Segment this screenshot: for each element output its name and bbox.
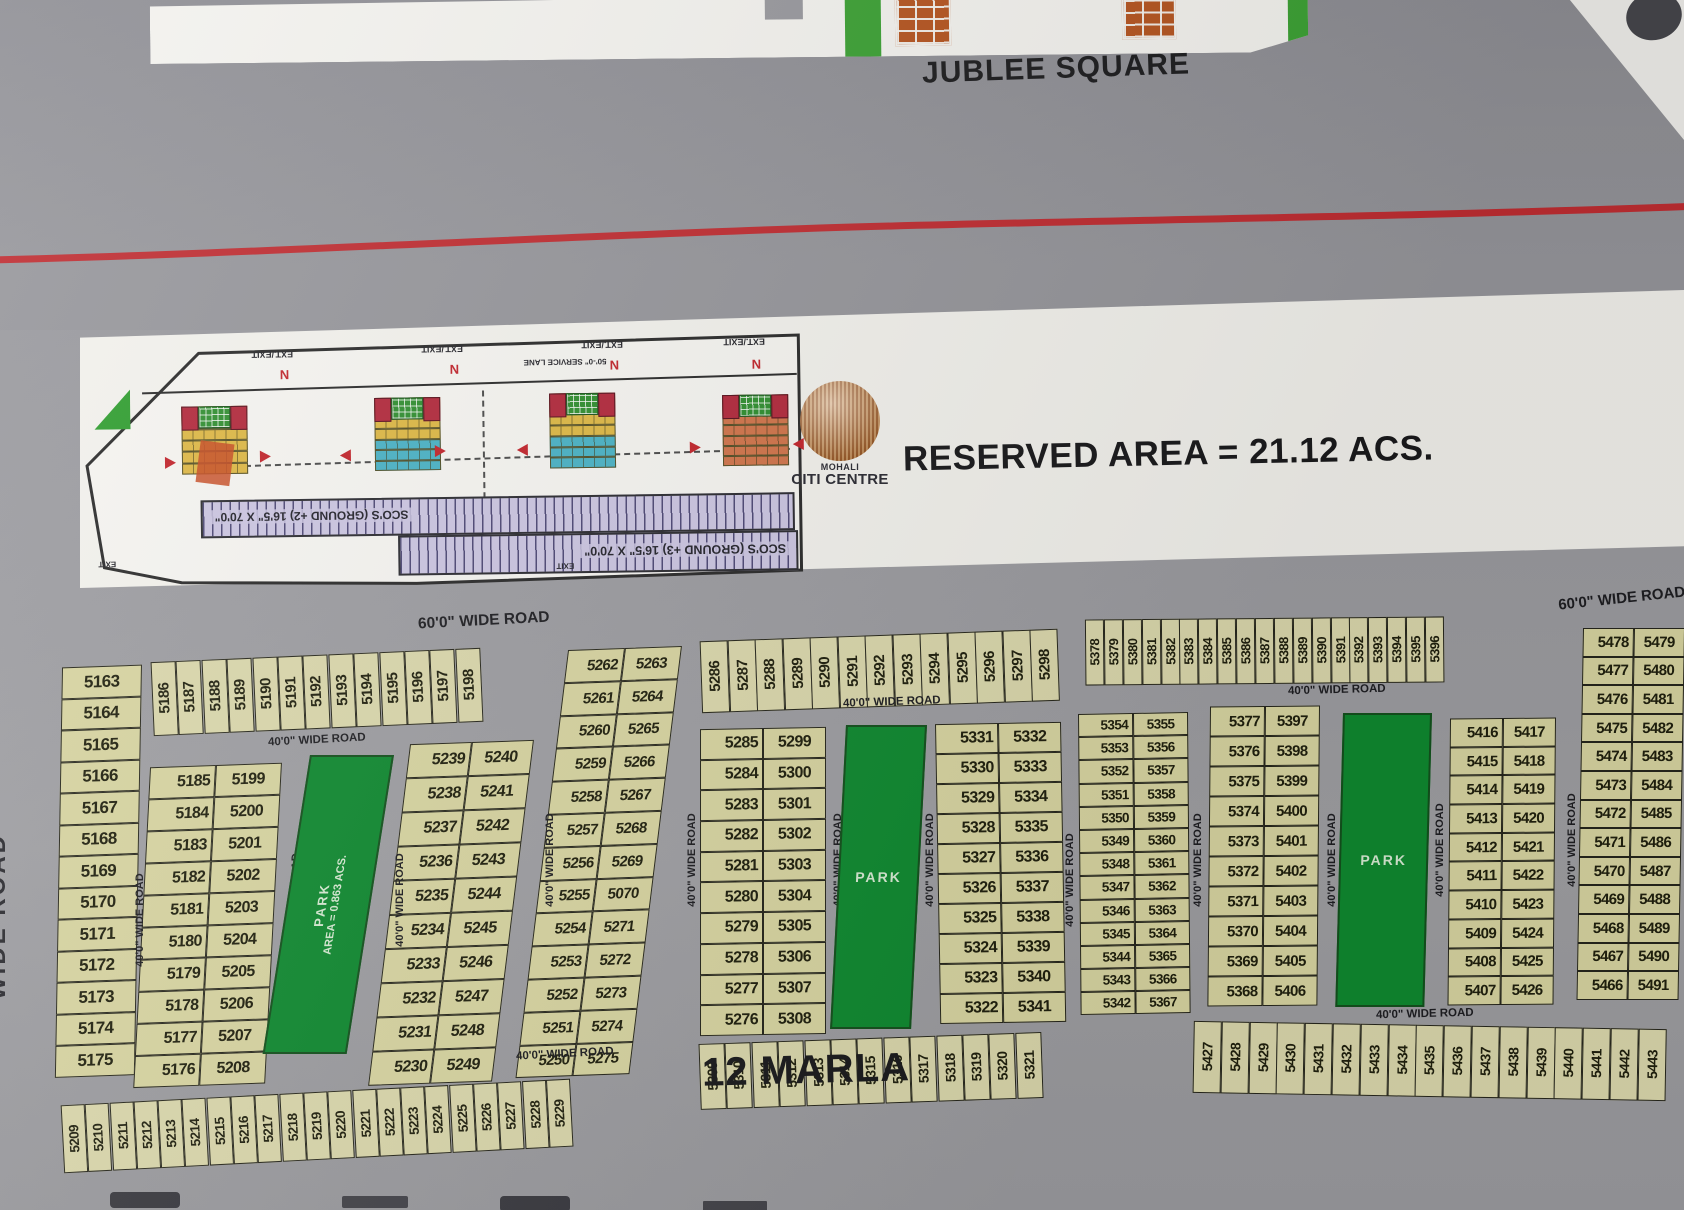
plot-pair-row: 54715486 bbox=[1579, 828, 1681, 857]
plot-cell: 5473 bbox=[1580, 771, 1631, 800]
plot-cell: 5258 bbox=[548, 780, 609, 815]
plot-cell: 5193 bbox=[328, 653, 357, 728]
plot-cell: 5188 bbox=[201, 659, 230, 734]
plot-cell: 5430 bbox=[1276, 1022, 1305, 1094]
green-grid-block bbox=[566, 393, 598, 415]
plot-pair-row: 52325247 bbox=[376, 979, 504, 1017]
plot-cell: 5483 bbox=[1632, 742, 1683, 771]
plot-cell: 5238 bbox=[402, 776, 468, 812]
plot-pair-row: 52515274 bbox=[519, 1009, 637, 1046]
mohali-citi-centre-logo bbox=[800, 381, 880, 461]
plot-cell: 5428 bbox=[1221, 1021, 1250, 1093]
plot-cell: 5285 bbox=[700, 728, 763, 760]
plot-cell: 5176 bbox=[133, 1054, 201, 1088]
road-label: 40'0" WIDE ROAD bbox=[394, 853, 406, 946]
plot-cell: 5467 bbox=[1577, 943, 1628, 972]
plot-pair-row: 52785306 bbox=[700, 942, 826, 975]
plot-cell: 5218 bbox=[279, 1093, 307, 1162]
plot-cell: 5477 bbox=[1582, 657, 1633, 686]
plot-pair-row: 52525273 bbox=[524, 976, 642, 1013]
plot-pair-row: 54725485 bbox=[1580, 800, 1682, 829]
plot-cell: 5207 bbox=[201, 1019, 269, 1053]
plot-cell: 5407 bbox=[1447, 976, 1500, 1005]
plot-pair-row: 52355244 bbox=[389, 877, 517, 915]
plot-pair-row: 52795305 bbox=[700, 911, 826, 944]
plot-cell: 5246 bbox=[443, 945, 509, 981]
plot-cell: 5197 bbox=[429, 649, 458, 724]
plot-pair-row: 52365243 bbox=[393, 842, 521, 880]
plot-cell: 5409 bbox=[1448, 919, 1501, 948]
plot-cell: 5443 bbox=[1637, 1029, 1666, 1101]
plot-pair-row: 52375242 bbox=[397, 808, 525, 846]
red-arrow bbox=[340, 449, 351, 461]
plot-cell: 5425 bbox=[1501, 947, 1554, 976]
plot-cell: 5395 bbox=[1406, 617, 1425, 683]
building-cluster bbox=[181, 406, 248, 497]
plot-cell: 5416 bbox=[1450, 718, 1503, 747]
plot-pair-row: 54685489 bbox=[1578, 914, 1680, 943]
plot-cell: 5321 bbox=[1015, 1032, 1044, 1099]
plot-cell: 5424 bbox=[1501, 918, 1554, 947]
road-label: 40'0" WIDE ROAD bbox=[134, 873, 146, 966]
plot-pair-row: 53305333 bbox=[936, 752, 1063, 784]
plot-cell: 5405 bbox=[1263, 946, 1318, 976]
plot-cell: 5377 bbox=[1210, 706, 1265, 736]
plot-cell: 5433 bbox=[1360, 1024, 1389, 1096]
plot-pair-row: 54115422 bbox=[1448, 861, 1554, 891]
plot-cell: 5182 bbox=[143, 861, 211, 895]
plot-pair-row: 54075426 bbox=[1447, 976, 1553, 1006]
plot-cell: 5249 bbox=[430, 1047, 496, 1083]
site-plan-photo: JUBLEE SQUARE EXT./EXIT EXT./EXIT EXT./E… bbox=[0, 0, 1684, 1210]
plot-cell: 5383 bbox=[1179, 619, 1198, 685]
plot-cell: 5401 bbox=[1264, 826, 1319, 856]
plot-pair-row: 53465363 bbox=[1080, 898, 1190, 923]
plot-cell: 5231 bbox=[372, 1015, 438, 1051]
plot-cell: 5330 bbox=[936, 753, 1000, 784]
plot-cell: 5284 bbox=[700, 759, 763, 791]
plot-cell: 5418 bbox=[1502, 746, 1555, 775]
plot-block-row_5378: 5378537953805381538253835384538553865387… bbox=[1085, 616, 1444, 685]
plot-cell: 5265 bbox=[613, 712, 674, 747]
plot-cell: 5171 bbox=[57, 917, 138, 951]
plot-cell: 5264 bbox=[617, 679, 678, 714]
plot-cell: 5166 bbox=[60, 759, 141, 793]
red-block bbox=[230, 406, 247, 430]
plot-cell: 5432 bbox=[1332, 1023, 1361, 1095]
plot-cell: 5475 bbox=[1581, 714, 1632, 743]
plot-cell: 5382 bbox=[1161, 619, 1180, 685]
plot-cell: 5334 bbox=[999, 782, 1063, 813]
plot-cell: 5208 bbox=[199, 1051, 267, 1085]
plot-cell: 5222 bbox=[376, 1088, 404, 1157]
plot-cell: 5393 bbox=[1368, 617, 1387, 683]
plot-pair-row: 53515358 bbox=[1079, 782, 1189, 807]
plot-cell: 5167 bbox=[59, 791, 140, 825]
plot-cell: 5434 bbox=[1387, 1024, 1416, 1096]
plot-block-pairs_5466_5491: 5478547954775480547654815475548254745483… bbox=[1577, 628, 1684, 1000]
plot-block-row_5209: 5209521052115212521352145215521652175218… bbox=[60, 1079, 573, 1174]
plot-pair-row: 53755399 bbox=[1209, 766, 1319, 797]
plot-pair-row: 52845300 bbox=[700, 758, 826, 791]
plot-pair-row: 53315332 bbox=[935, 722, 1062, 754]
plot-cell: 5399 bbox=[1264, 766, 1319, 796]
plot-pair-row: 52815303 bbox=[700, 850, 826, 883]
plot-pair-row: 53265337 bbox=[938, 872, 1065, 904]
plot-cell: 5488 bbox=[1629, 885, 1680, 914]
plot-cell: 5203 bbox=[208, 891, 276, 925]
plot-pair-row: 51835201 bbox=[145, 827, 279, 864]
photo-edge-artifacts bbox=[110, 1192, 180, 1208]
plot-cell: 5328 bbox=[937, 813, 1001, 844]
cluster-row bbox=[550, 457, 616, 469]
plot-cell: 5337 bbox=[1001, 872, 1065, 903]
plot-cell: 5267 bbox=[605, 778, 666, 813]
plot-pair-row: 52805304 bbox=[700, 880, 826, 913]
plot-cell: 5442 bbox=[1610, 1028, 1639, 1100]
plot-cell: 5244 bbox=[451, 877, 517, 913]
plot-cell: 5174 bbox=[55, 1012, 136, 1046]
plot-pair-row: 53235340 bbox=[939, 962, 1066, 994]
plot-cell: 5329 bbox=[936, 783, 1000, 814]
plot-cell: 5361 bbox=[1134, 851, 1189, 875]
plot-cell: 5211 bbox=[109, 1102, 137, 1171]
plot-cell: 5403 bbox=[1263, 886, 1318, 916]
plot-pair-row: 53715403 bbox=[1208, 886, 1318, 917]
road-label: 60'0" WIDE ROAD bbox=[418, 609, 550, 634]
plot-cell: 5228 bbox=[521, 1080, 549, 1149]
plot-cell: 5480 bbox=[1633, 657, 1684, 686]
plot-pair-row: 53295334 bbox=[936, 782, 1063, 814]
plot-cell: 5254 bbox=[532, 912, 593, 947]
plot-pair-row: 53505359 bbox=[1079, 805, 1189, 830]
sco-strip-lower: SCO'S (GROUND +3) 16'5" X 70'0" bbox=[398, 530, 799, 576]
plot-cell: 5187 bbox=[176, 660, 205, 735]
green-grid-block bbox=[739, 394, 771, 416]
plot-cell: 5426 bbox=[1500, 976, 1553, 1005]
plot-cell: 5200 bbox=[213, 795, 281, 829]
plot-cell: 5332 bbox=[998, 722, 1062, 753]
plot-cell: 5224 bbox=[424, 1085, 452, 1154]
plot-cell: 5470 bbox=[1579, 857, 1630, 886]
plot-cell: 5375 bbox=[1209, 766, 1264, 796]
road-label: 40'0" WIDE ROAD bbox=[1376, 1007, 1474, 1022]
plot-cell: 5357 bbox=[1133, 758, 1188, 782]
plot-cell: 5486 bbox=[1630, 828, 1681, 857]
plot-pair-row: 53725402 bbox=[1208, 856, 1318, 887]
exit-label-small: EXIT bbox=[98, 560, 116, 569]
plot-cell: 5276 bbox=[700, 1004, 763, 1036]
red-block bbox=[374, 398, 391, 422]
plot-cell: 5189 bbox=[226, 658, 255, 733]
sector-size-label: 12 MARLA bbox=[701, 1045, 910, 1095]
plot-block-row_5186: 5186518751885189519051915192519351945195… bbox=[150, 648, 483, 736]
plot-cell: 5181 bbox=[142, 893, 210, 927]
plot-cell: 5404 bbox=[1263, 916, 1318, 946]
plot-cell: 5183 bbox=[145, 829, 213, 863]
plot-pair-row: 52605265 bbox=[556, 712, 674, 749]
plot-cell: 5170 bbox=[58, 885, 139, 919]
red-block bbox=[598, 393, 615, 417]
plot-cell: 5206 bbox=[203, 987, 271, 1021]
plot-cell: 5368 bbox=[1207, 976, 1262, 1006]
plot-cell: 5163 bbox=[61, 665, 142, 699]
plot-cell: 5241 bbox=[464, 774, 530, 810]
plot-pair-row: 52835301 bbox=[700, 788, 826, 821]
mohali-citi-centre-wordmark: MOHALI CITI CENTRE bbox=[770, 462, 910, 488]
red-arrow bbox=[690, 441, 701, 453]
plot-cell: 5204 bbox=[206, 923, 274, 957]
green-strip bbox=[845, 0, 882, 57]
plot-cell: 5348 bbox=[1079, 852, 1134, 876]
red-block bbox=[423, 397, 440, 421]
plot-cell: 5481 bbox=[1633, 685, 1684, 714]
plot-cell: 5263 bbox=[621, 646, 682, 681]
plot-cell: 5289 bbox=[783, 637, 813, 710]
road-label: 40'0" WIDE ROAD bbox=[1192, 813, 1204, 906]
plot-pair-row: 52825302 bbox=[700, 819, 826, 852]
plot-cell: 5287 bbox=[728, 639, 758, 712]
plot-cell: 5323 bbox=[939, 963, 1003, 994]
plot-cell: 5422 bbox=[1501, 861, 1554, 890]
plot-pair-row: 54125421 bbox=[1449, 832, 1555, 862]
plot-cell: 5391 bbox=[1331, 617, 1350, 683]
plot-cell: 5230 bbox=[368, 1050, 434, 1086]
plot-cell: 5302 bbox=[763, 819, 826, 851]
red-arrow bbox=[793, 438, 804, 450]
exit-label-small: EXIT bbox=[556, 561, 574, 570]
plot-cell: 5362 bbox=[1134, 874, 1189, 898]
plot-cell: 5233 bbox=[381, 947, 447, 983]
plot-cell: 5331 bbox=[935, 723, 999, 754]
plot-cell: 5398 bbox=[1264, 736, 1319, 766]
plot-pair-row: 52535272 bbox=[528, 943, 646, 980]
sco-strip-label: SCO'S (GROUND +3) 16'5" X 70'0" bbox=[580, 541, 790, 558]
plot-pair-row: 52395240 bbox=[406, 740, 534, 778]
plot-cell: 5367 bbox=[1135, 990, 1190, 1014]
plot-cell: 5172 bbox=[57, 948, 138, 982]
plot-cell: 5304 bbox=[763, 880, 826, 912]
plot-cell: 5411 bbox=[1448, 861, 1501, 890]
plot-cell: 5479 bbox=[1634, 628, 1684, 657]
plot-cell: 5471 bbox=[1579, 828, 1630, 857]
plot-pair-row: 52545271 bbox=[532, 910, 650, 947]
plot-cell: 5343 bbox=[1080, 968, 1135, 992]
plot-cell: 5185 bbox=[148, 765, 216, 799]
cluster-cap bbox=[181, 406, 247, 429]
exit-label: EXT./EXIT bbox=[251, 349, 293, 360]
plot-cell: 5202 bbox=[209, 859, 277, 893]
plot-cell: 5268 bbox=[601, 811, 662, 846]
plot-cell: 5178 bbox=[137, 990, 205, 1024]
service-lane-label: 50'-0" SERVICE LANE bbox=[524, 357, 607, 367]
plot-cell: 5358 bbox=[1134, 782, 1189, 806]
plot-cell: 5243 bbox=[455, 842, 521, 878]
plot-cell: 5229 bbox=[546, 1079, 574, 1148]
plot-pair-row: 52335246 bbox=[381, 945, 509, 983]
exit-label: EXT./EXIT bbox=[581, 340, 623, 351]
plot-cell: 5365 bbox=[1135, 944, 1190, 968]
plot-cell: 5179 bbox=[138, 957, 206, 991]
plot-cell: 5281 bbox=[700, 851, 763, 883]
plot-pair-row: 53765398 bbox=[1209, 736, 1319, 767]
plot-cell: 5342 bbox=[1080, 991, 1135, 1015]
plot-cell: 5394 bbox=[1387, 617, 1406, 683]
plot-pair-row: 54665491 bbox=[1577, 971, 1679, 1000]
plot-pair-row: 52575268 bbox=[544, 811, 662, 848]
plot-cell: 5380 bbox=[1123, 619, 1142, 685]
plot-cell: 5466 bbox=[1577, 971, 1628, 1000]
plot-pair-row: 54095424 bbox=[1448, 918, 1554, 948]
plot-cell: 5227 bbox=[497, 1081, 525, 1150]
plot-cell: 5372 bbox=[1208, 856, 1263, 886]
plot-cell: 5298 bbox=[1030, 629, 1060, 702]
plot-cell: 5349 bbox=[1079, 829, 1134, 853]
plot-cell: 5173 bbox=[56, 980, 137, 1014]
plot-pair-row: 52615264 bbox=[560, 679, 678, 716]
plot-cell: 5290 bbox=[810, 636, 840, 709]
plot-pair-row: 53545355 bbox=[1078, 712, 1188, 737]
plot-cell: 5251 bbox=[519, 1011, 580, 1046]
plot-cell: 5245 bbox=[447, 911, 513, 947]
plot-cell: 5408 bbox=[1448, 948, 1501, 977]
plot-block-pairs_5185_5208: 5185519951845200518352015182520251815203… bbox=[133, 763, 282, 1088]
plot-cell: 5261 bbox=[560, 681, 621, 716]
plot-pair-row: 52595266 bbox=[552, 745, 670, 782]
plot-cell: 5225 bbox=[449, 1084, 477, 1153]
plot-cell: 5468 bbox=[1578, 914, 1629, 943]
plot-cell: 5240 bbox=[468, 740, 534, 776]
plot-cell: 5352 bbox=[1078, 759, 1133, 783]
plot-cell: 5419 bbox=[1502, 775, 1555, 804]
plot-cell: 5338 bbox=[1001, 902, 1065, 933]
plot-pair-row: 53525357 bbox=[1078, 758, 1188, 783]
plot-pair-row: 54085425 bbox=[1448, 947, 1554, 977]
plot-pair-row: 53225341 bbox=[940, 992, 1067, 1024]
plot-cell: 5476 bbox=[1582, 685, 1633, 714]
plot-block-pairs_5322_5341: 5331533253305333532953345328533553275336… bbox=[935, 722, 1066, 1024]
plot-cell: 5485 bbox=[1631, 800, 1682, 829]
plot-cell: 5469 bbox=[1578, 885, 1629, 914]
plot-cell: 5478 bbox=[1583, 628, 1634, 657]
plot-cell: 5277 bbox=[700, 974, 763, 1006]
plot-cell: 5194 bbox=[353, 652, 382, 727]
plot-cell: 5190 bbox=[252, 657, 281, 732]
plot-cell: 5070 bbox=[593, 877, 654, 912]
plot-cell: 5490 bbox=[1628, 943, 1679, 972]
plot-cell: 5322 bbox=[940, 993, 1004, 1024]
road-label: 60'0" WIDE ROAD bbox=[1557, 583, 1684, 613]
building-cluster bbox=[374, 397, 441, 493]
plot-cell: 5274 bbox=[576, 1009, 637, 1044]
plot-pair-row: 53775397 bbox=[1210, 706, 1320, 737]
north-arrow: N bbox=[610, 358, 620, 373]
plot-cell: 5239 bbox=[406, 742, 472, 778]
park-label: PARK bbox=[1360, 852, 1407, 868]
plot-cell: 5184 bbox=[147, 797, 215, 831]
plot-cell: 5482 bbox=[1632, 714, 1683, 743]
red-block bbox=[549, 393, 566, 417]
green-grid-block bbox=[391, 397, 423, 419]
plot-cell: 5474 bbox=[1581, 742, 1632, 771]
plot-cell: 5252 bbox=[524, 978, 585, 1013]
plot-cell: 5177 bbox=[135, 1022, 203, 1056]
plot-cell: 5360 bbox=[1134, 828, 1189, 852]
plot-cell: 5410 bbox=[1448, 890, 1501, 919]
red-arrow bbox=[260, 450, 271, 462]
plot-cell: 5484 bbox=[1631, 771, 1682, 800]
plot-cell: 5472 bbox=[1580, 800, 1631, 829]
plot-cell: 5283 bbox=[700, 789, 763, 821]
red-block bbox=[771, 394, 788, 418]
plot-pair-row: 54705487 bbox=[1579, 857, 1681, 886]
plot-cell: 5288 bbox=[755, 638, 785, 711]
plot-cell: 5347 bbox=[1079, 875, 1134, 899]
red-block bbox=[181, 406, 198, 430]
plot-cell: 5199 bbox=[214, 763, 282, 797]
plot-cell: 5192 bbox=[302, 654, 331, 729]
plot-pair-row: 53245339 bbox=[939, 932, 1066, 964]
plot-cell: 5278 bbox=[700, 943, 763, 975]
road-label: 40'0" WIDE ROAD bbox=[544, 813, 556, 906]
plot-cell: 5325 bbox=[938, 903, 1002, 934]
park-1: PARK AREA = 0.863 ACS. bbox=[263, 755, 394, 1054]
road-label: 40'0" WIDE ROAD bbox=[1288, 683, 1386, 698]
north-arrow: N bbox=[752, 357, 762, 372]
plot-cell: 5421 bbox=[1502, 832, 1555, 861]
plot-cell: 5271 bbox=[589, 910, 650, 945]
plot-cell: 5376 bbox=[1209, 736, 1264, 766]
plot-cell: 5366 bbox=[1135, 967, 1190, 991]
plot-cell: 5369 bbox=[1208, 946, 1263, 976]
park-label: PARK bbox=[855, 869, 902, 885]
plot-pair-row: 53685406 bbox=[1207, 976, 1317, 1007]
plot-cell: 5260 bbox=[556, 714, 617, 749]
plot-cell: 5215 bbox=[206, 1096, 234, 1165]
plot-cell: 5232 bbox=[376, 981, 442, 1017]
plot-cell: 5437 bbox=[1471, 1026, 1500, 1098]
plot-cell: 5282 bbox=[700, 820, 763, 852]
plot-cell: 5341 bbox=[1003, 992, 1067, 1023]
plot-cell: 5327 bbox=[937, 843, 1001, 874]
plot-pair-row: 53535356 bbox=[1078, 735, 1188, 760]
plot-cell: 5205 bbox=[204, 955, 272, 989]
plot-pair-row: 54785479 bbox=[1583, 628, 1684, 657]
road-marking-line bbox=[0, 180, 1684, 310]
road-label: 40'0" WIDE ROAD bbox=[1326, 813, 1338, 906]
plot-cell: 5427 bbox=[1193, 1021, 1222, 1093]
plot-cell: 5301 bbox=[763, 788, 826, 820]
plot-cell: 5201 bbox=[211, 827, 279, 861]
plot-block-pairs_5342_5367: 5354535553535356535253575351535853505359… bbox=[1078, 712, 1191, 1015]
road-label: 40'0" WIDE ROAD bbox=[1566, 793, 1578, 886]
plot-cell: 5385 bbox=[1217, 618, 1236, 684]
plot-pair-row: 51845200 bbox=[147, 795, 281, 832]
plot-pair-row: 54775480 bbox=[1582, 657, 1684, 686]
plot-pair-row: 54105423 bbox=[1448, 890, 1554, 920]
plot-cell: 5387 bbox=[1255, 618, 1274, 684]
plot-cell: 5340 bbox=[1002, 962, 1066, 993]
plot-cell: 5339 bbox=[1002, 932, 1066, 963]
plot-pair-row: 54145419 bbox=[1449, 775, 1555, 805]
plot-cell: 5406 bbox=[1262, 976, 1317, 1006]
plot-cell: 5198 bbox=[455, 648, 484, 723]
plot-pair-row: 54745483 bbox=[1581, 742, 1683, 771]
plot-pair-row: 52625263 bbox=[564, 646, 682, 683]
plot-cell: 5386 bbox=[1236, 618, 1255, 684]
orange-blotch bbox=[196, 440, 235, 486]
plot-pair-row: 51795205 bbox=[138, 955, 272, 992]
